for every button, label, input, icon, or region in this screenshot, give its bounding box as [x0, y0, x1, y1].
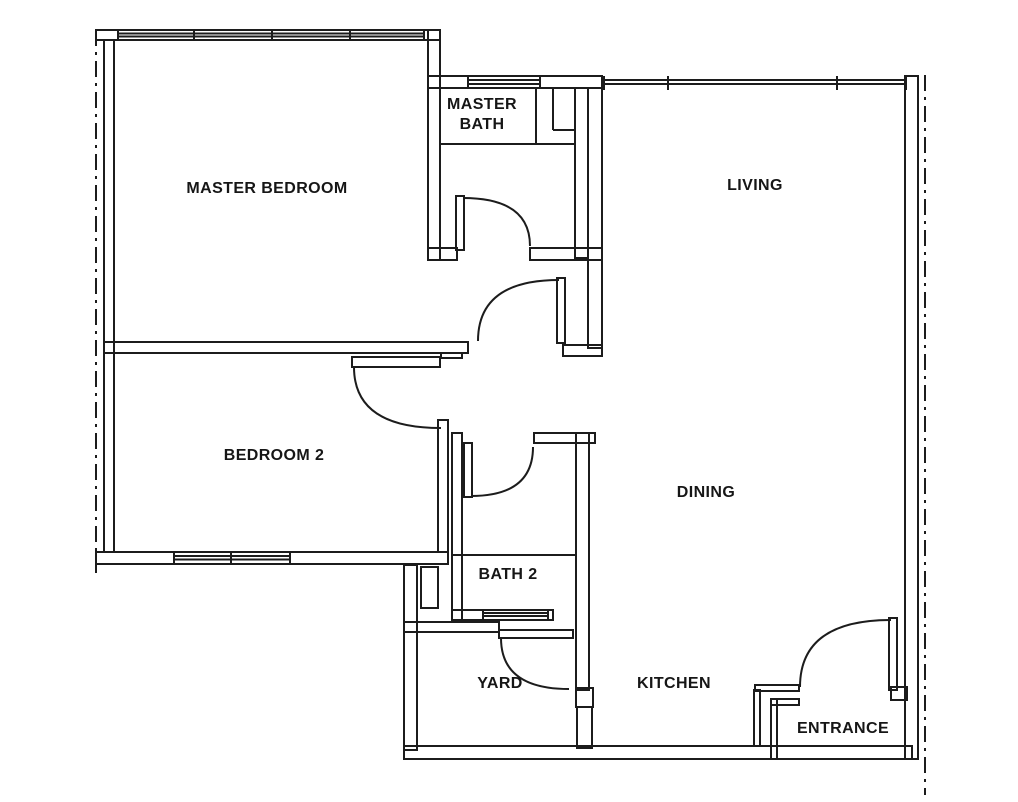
wall-bath2-top-right: [534, 433, 595, 443]
wall-living-left: [588, 88, 602, 348]
room-label-text: MASTER BEDROOM: [186, 179, 347, 199]
wall-masterbath-right: [575, 88, 588, 258]
wall-bedroom2-right: [438, 420, 448, 552]
wall-bottom-exterior: [404, 746, 912, 759]
room-label-bath-2: BATH 2: [479, 565, 538, 585]
jamb-bedroom2-door: [441, 353, 462, 358]
wall-yard-right-lower: [577, 707, 592, 748]
wall-yard-left: [404, 565, 417, 750]
wall-bath2-left: [452, 433, 462, 620]
room-label-text: ENTRANCE: [797, 719, 889, 739]
window-bedroom2-bottom: [174, 552, 290, 564]
wall-right-exterior: [905, 76, 918, 759]
room-label-text: YARD: [477, 674, 522, 694]
door-bath2: [464, 443, 533, 497]
wall-kitchen-step-vertical: [754, 690, 760, 746]
room-label-text: LIVING: [727, 176, 783, 196]
window-master-bath-top: [468, 76, 540, 88]
room-label-text: BEDROOM 2: [224, 446, 325, 466]
room-label-master-bath: MASTERBATH: [447, 95, 517, 135]
wall-masterbath-top: [428, 76, 602, 88]
wall-entrance-left: [771, 699, 777, 759]
room-label-text: DINING: [677, 483, 735, 503]
window-living-top: [604, 76, 906, 90]
room-label-text: KITCHEN: [637, 674, 711, 694]
room-label-dining: DINING: [677, 483, 735, 503]
room-label-bedroom-2: BEDROOM 2: [224, 446, 325, 466]
door-bedroom2: [352, 357, 441, 428]
wall-master-bedroom-right: [428, 30, 440, 260]
room-label-kitchen: KITCHEN: [637, 674, 711, 694]
wall-masterbath-bottom-right: [530, 248, 602, 260]
wall-yard-top: [404, 622, 499, 632]
room-label-entrance: ENTRANCE: [797, 719, 889, 739]
room-label-living: LIVING: [727, 176, 783, 196]
door-entrance: [800, 618, 897, 690]
fixture-cabinet: [421, 567, 438, 608]
room-label-text: BATH 2: [479, 565, 538, 585]
wall-kitchen-step-horizontal: [755, 685, 799, 691]
floor-plan-page: MASTER BEDROOMMASTERBATHLIVINGBEDROOM 2D…: [0, 0, 1018, 802]
wall-bedroom2-top: [104, 342, 468, 353]
room-label-yard: YARD: [477, 674, 522, 694]
wall-bath2-right: [576, 433, 589, 690]
wall-top-master-bedroom: [96, 30, 440, 40]
door-hall-to-dining: [478, 278, 565, 343]
window-master-bedroom-top: [118, 30, 424, 40]
room-label-master-bedroom: MASTER BEDROOM: [186, 179, 347, 199]
door-master-bath: [456, 196, 530, 250]
room-label-text: BATH: [447, 115, 517, 135]
wall-bedroom2-bottom: [96, 552, 448, 564]
wall-masterbath-bottom-left: [428, 248, 457, 260]
wall-left-exterior: [104, 40, 114, 552]
window-bath2-bottom: [483, 610, 548, 620]
wall-hall-step: [563, 345, 602, 356]
room-label-text: MASTER: [447, 95, 517, 115]
